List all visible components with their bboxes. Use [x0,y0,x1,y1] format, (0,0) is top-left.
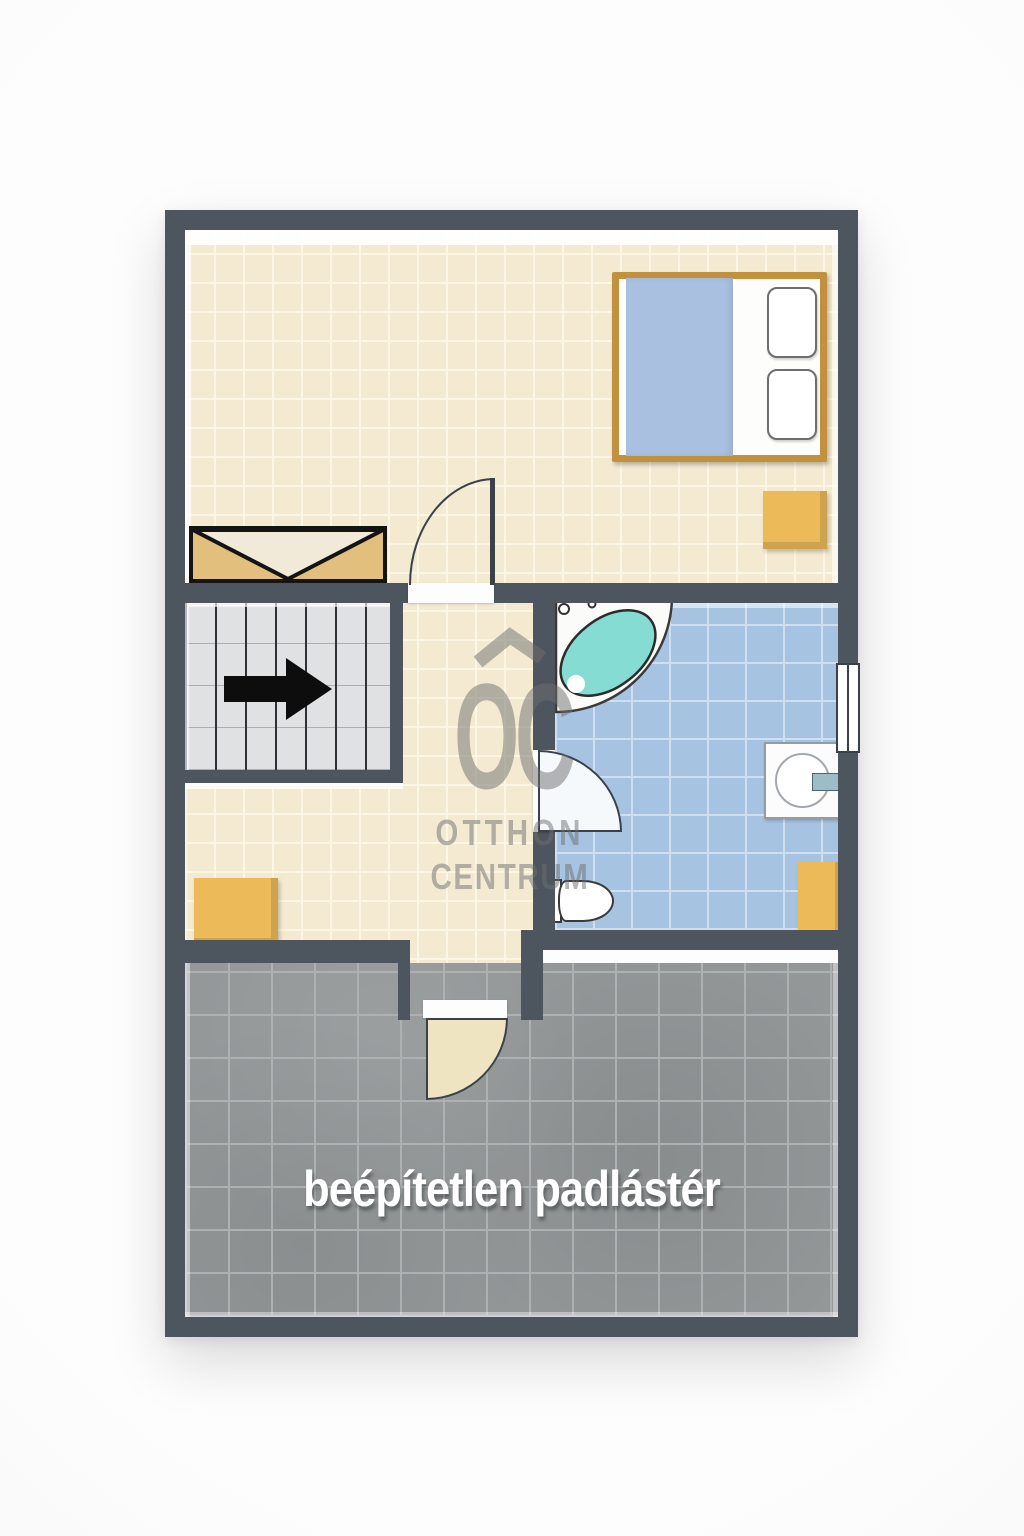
wall-bedroom-bottom-left [165,583,408,603]
wall-stairs-right [390,603,403,783]
bedroom-door-threshold [408,583,494,603]
wall-landing-bottom [165,940,410,963]
wall-stairs-bottom [165,770,403,783]
attic-door-threshold [423,1000,507,1018]
floor-plan-image: beépítetlen padlástér OC OTTHON CENTRUM [0,0,1024,1536]
attic-label: beépítetlen padlástér [227,1160,795,1218]
window-icon [836,663,860,753]
wall-bathroom-bottom [521,930,858,950]
wall-hall-protrusion-left [398,940,410,1020]
wall-bathroom-left-upper [533,583,555,750]
wall-bathroom-left-lower [533,832,555,930]
wall-hall-protrusion-right [521,930,543,1020]
